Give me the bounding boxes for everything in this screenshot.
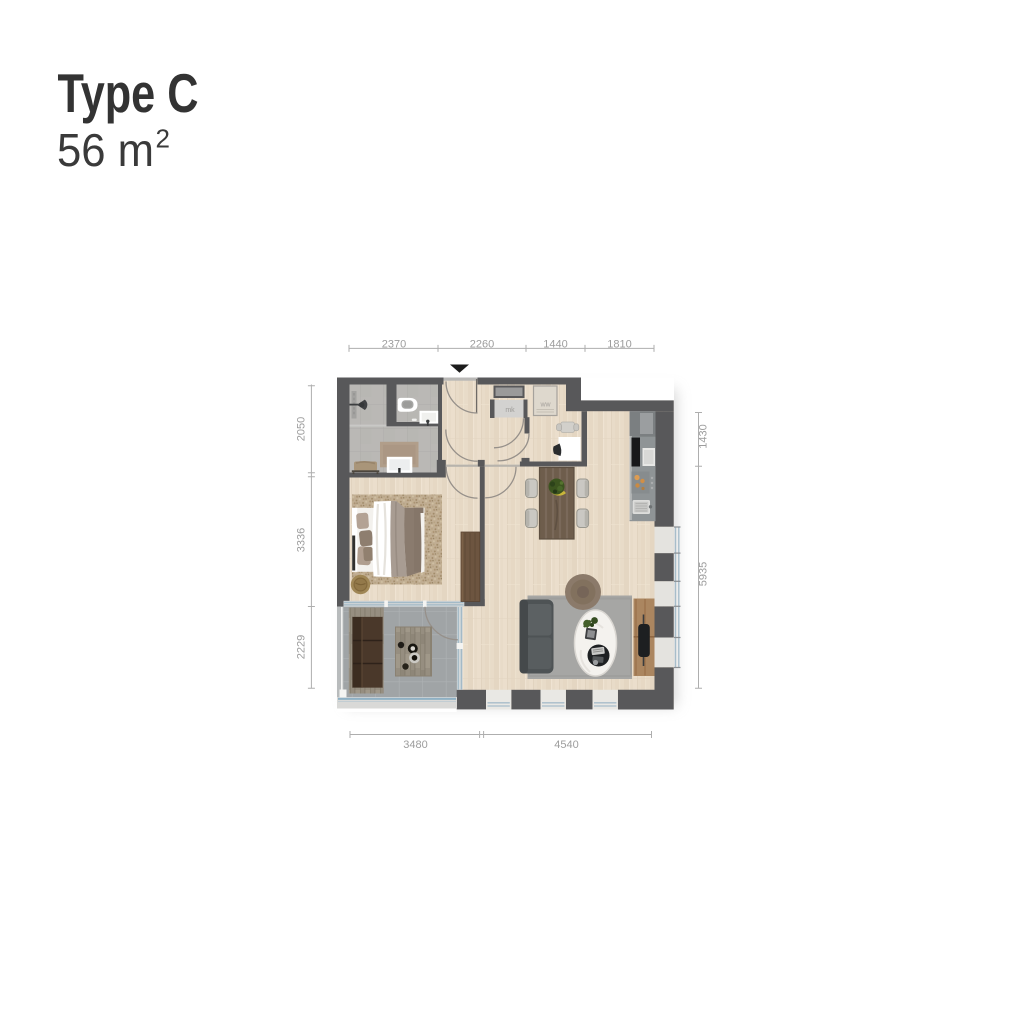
svg-text:2229: 2229 bbox=[296, 635, 308, 659]
svg-text:1440: 1440 bbox=[543, 338, 567, 350]
svg-text:ww: ww bbox=[539, 402, 551, 409]
svg-text:2370: 2370 bbox=[382, 338, 406, 350]
svg-text:3480: 3480 bbox=[403, 739, 427, 751]
svg-text:mk: mk bbox=[505, 407, 515, 414]
svg-text:1810: 1810 bbox=[607, 338, 631, 350]
svg-text:2050: 2050 bbox=[296, 417, 308, 441]
svg-text:2: 2 bbox=[156, 124, 170, 154]
svg-text:1430: 1430 bbox=[698, 424, 710, 448]
svg-text:3336: 3336 bbox=[296, 528, 308, 552]
svg-text:56 m: 56 m bbox=[57, 124, 154, 176]
svg-text:2260: 2260 bbox=[470, 338, 494, 350]
svg-text:Type C: Type C bbox=[58, 62, 199, 124]
svg-text:5935: 5935 bbox=[698, 562, 710, 586]
svg-text:4540: 4540 bbox=[554, 739, 578, 751]
